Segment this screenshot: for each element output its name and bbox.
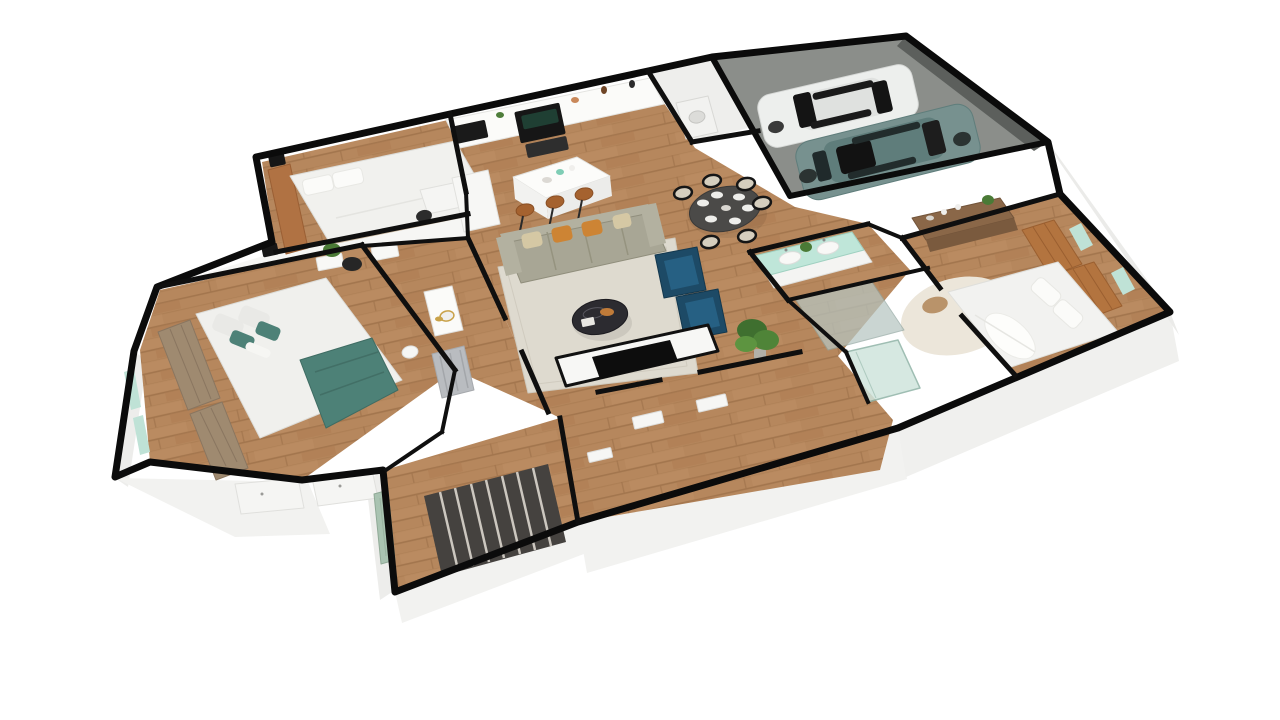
island-decor-mint (556, 169, 564, 175)
island-decor-vase (569, 165, 575, 171)
floor-plan-svg (0, 0, 1280, 720)
plant-foliage2 (753, 330, 779, 350)
coffee-table-bowl (600, 308, 614, 316)
floor-plan-3d-render (0, 0, 1280, 720)
kitchen-decor-bottle (601, 86, 607, 94)
kitchen-decor-bowl (571, 97, 579, 103)
island-decor-tray (542, 177, 552, 183)
dining-plate3 (733, 194, 745, 201)
kitchen-decor-jar (629, 80, 635, 88)
bedroom3-dresser-vase2 (955, 204, 961, 210)
bathroom-faucet2 (823, 239, 826, 242)
master-closet2-handle (339, 485, 342, 488)
bedroom3-dresser-vase1 (941, 209, 947, 215)
dining-centerpiece (721, 205, 731, 211)
bedroom3-dresser-plant (982, 195, 994, 205)
masterbath-gold-tray (435, 317, 443, 322)
dining-plate1 (697, 200, 709, 207)
bedroom3-dresser-tray (926, 216, 934, 221)
kitchen-decor-plant (496, 112, 504, 118)
bathroom-plant (800, 242, 812, 252)
bathroom-faucet1 (785, 249, 788, 252)
master-closet1-handle (261, 493, 264, 496)
dining-plate2 (711, 192, 723, 199)
dining-plate5 (729, 218, 741, 225)
master-side-table (342, 257, 362, 271)
plant-foliage3 (735, 336, 757, 352)
master-closet1 (235, 478, 304, 514)
dining-plate6 (705, 216, 717, 223)
